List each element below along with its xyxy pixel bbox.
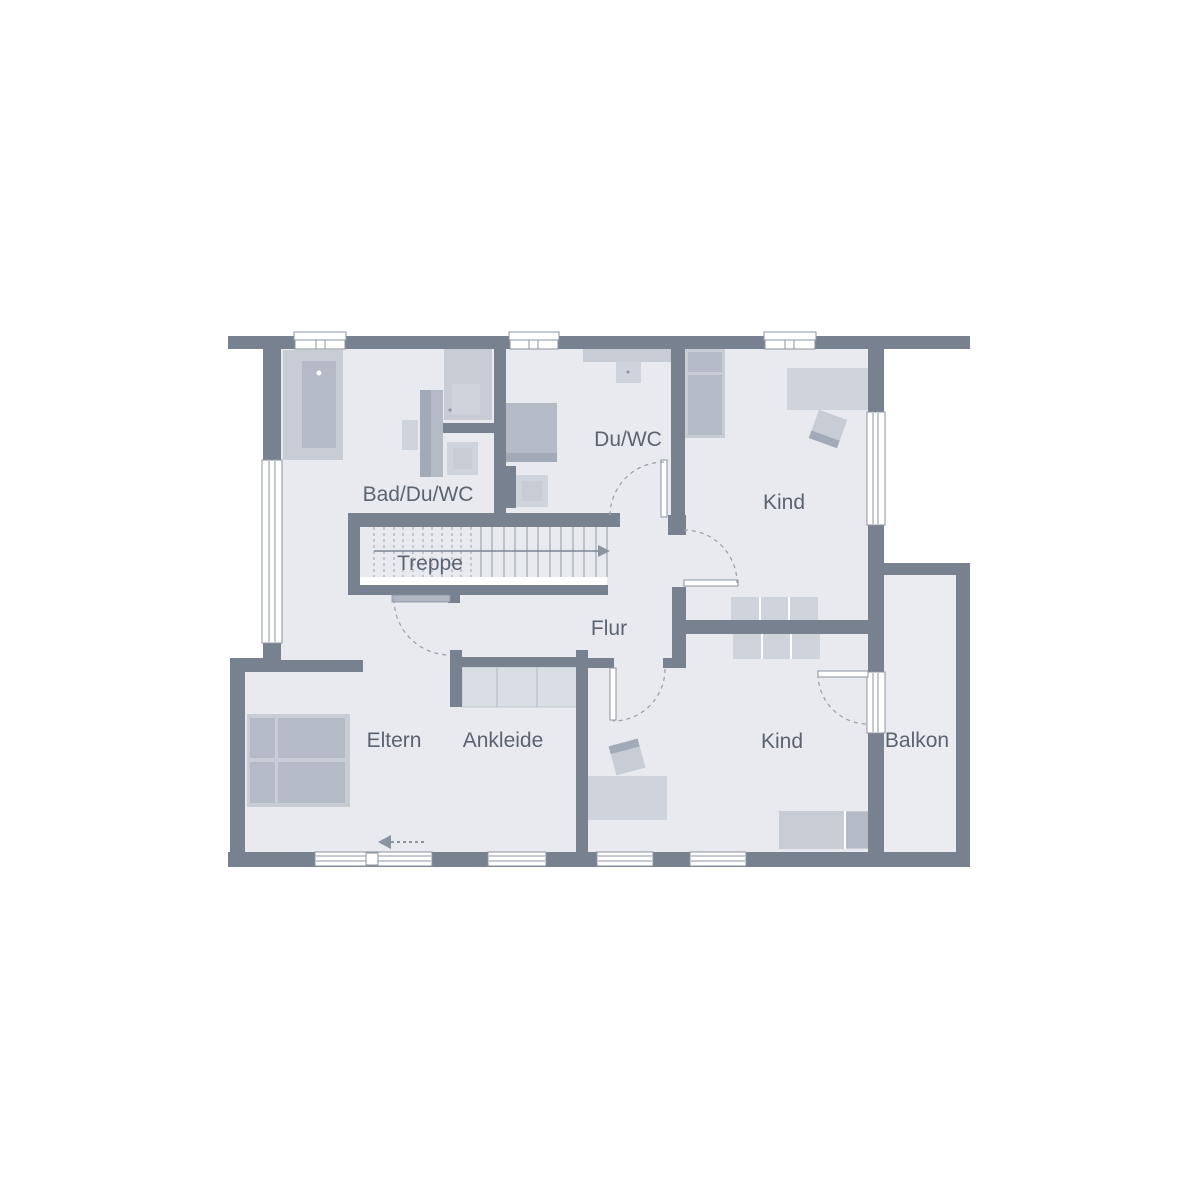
balcony-railing-right	[956, 563, 970, 852]
shower-bad	[444, 349, 492, 420]
desk-kind-top	[787, 368, 868, 410]
wall-bad-duwc-divider	[494, 347, 506, 520]
label-balkon: Balkon	[885, 729, 949, 752]
wall-closet-top	[450, 657, 588, 667]
wall-stair-top	[348, 513, 620, 527]
label-du-wc: Du/WC	[594, 428, 662, 451]
wall-stair-bottom	[348, 585, 608, 595]
washbasin	[402, 420, 418, 450]
wall-exterior-right-upper	[868, 349, 884, 412]
floor-plan-drawing: Bad/Du/WC Du/WC Treppe Flur Kind Eltern …	[0, 0, 1200, 1200]
balcony-floor	[884, 575, 956, 852]
bed-kind-bottom	[779, 811, 868, 849]
window-bottom-4	[690, 852, 746, 866]
window-bottom-1	[315, 852, 432, 866]
window-bottom-2	[488, 852, 546, 866]
vanity-duwc	[506, 403, 557, 462]
window-top-2	[509, 332, 559, 349]
wall-kind-balkon-upper	[868, 575, 884, 672]
window-left	[262, 460, 282, 643]
door-leaf	[392, 595, 450, 602]
cistern	[506, 466, 516, 508]
label-bad-du-wc: Bad/Du/WC	[363, 483, 474, 506]
wall-kind-balkon-lower	[868, 732, 884, 852]
wardrobe-kind-top	[685, 348, 725, 438]
floor-plan-page: Bad/Du/WC Du/WC Treppe Flur Kind Eltern …	[0, 0, 1200, 1200]
half-wall	[443, 423, 497, 433]
toilet-bad	[447, 442, 478, 475]
wall-exterior-left-upper	[263, 336, 281, 460]
door-leaf	[661, 460, 667, 517]
wall-kind-bottom-top-a	[576, 658, 614, 668]
door-leaf	[610, 668, 616, 720]
stair-landing-strip	[360, 577, 607, 586]
drain-icon	[317, 371, 322, 376]
label-ankleide: Ankleide	[463, 729, 544, 752]
label-treppe: Treppe	[397, 552, 463, 575]
door-leaf	[684, 580, 738, 586]
wall-ankleide-kind-divider	[576, 650, 588, 852]
wall-kind-rooms-divider	[680, 620, 870, 634]
window-top-1	[294, 332, 346, 349]
window-top-3	[764, 332, 816, 349]
desk-kind-bottom	[588, 776, 667, 820]
bed-eltern	[247, 714, 350, 807]
wall-exterior-left-lower	[230, 672, 245, 852]
closet-ankleide	[462, 667, 582, 707]
pillow	[846, 812, 868, 848]
wall-duwc-kind-divider	[671, 348, 685, 517]
bathtub	[283, 350, 343, 460]
wall-stair-left	[348, 513, 360, 595]
door-leaf	[818, 671, 868, 677]
wardrobe-kind-bottom	[733, 634, 820, 659]
label-kind-bottom: Kind	[761, 730, 803, 753]
balcony-door-glazing	[867, 672, 885, 733]
label-eltern: Eltern	[367, 729, 422, 752]
window-bottom-3	[597, 852, 653, 866]
drain-icon	[627, 371, 630, 374]
window-right	[867, 412, 885, 525]
label-kind-top: Kind	[763, 491, 805, 514]
wall-corner-flur-ne	[668, 515, 686, 535]
dresser-kind-top	[731, 597, 818, 620]
label-flur: Flur	[591, 617, 627, 640]
wall-eltern-top	[245, 660, 363, 672]
wall-exterior-right-mid	[868, 525, 884, 575]
window-mullion	[366, 853, 378, 865]
handle-icon	[449, 409, 452, 412]
